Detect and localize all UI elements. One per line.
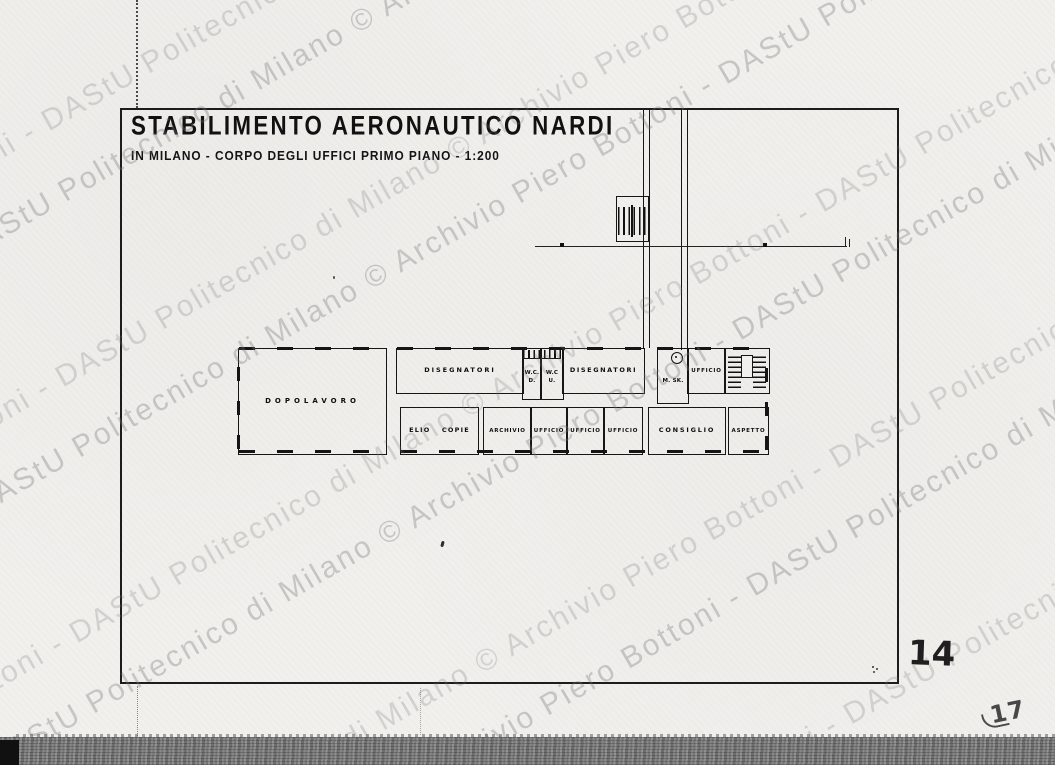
watermark-text: © Archivio Piero Bottoni - DAStU Politec… [0, 0, 1055, 87]
room-disegnatori-right: DISEGNATORI [562, 348, 645, 394]
stair-flight [728, 355, 741, 388]
room-label: DOPOLAVORO [265, 396, 360, 407]
ink-speck [333, 276, 335, 279]
canopy-column-mark [763, 243, 767, 247]
exterior-wall-hatch [239, 347, 384, 351]
pencil-curve [981, 709, 1010, 730]
stair-divider [631, 205, 633, 237]
wing-staircase [616, 196, 649, 242]
drawing-subtitle: IN MILANO - CORPO DEGLI UFFICI PRIMO PIA… [131, 149, 500, 163]
room-label: DISEGNATORI [424, 366, 496, 376]
canopy-column-mark [560, 243, 564, 247]
room-label: W.C U. [546, 369, 558, 386]
room-label: UFFICIO [608, 427, 638, 435]
room-ufficio-2: UFFICIO [566, 407, 605, 455]
drawing-title: STABILIMENTO AERONAUTICO NARDI [131, 111, 614, 142]
scanned-drawing-page: © Archivio Piero Bottoni - DAStU Politec… [0, 0, 1055, 765]
room-disegnatori-left: DISEGNATORI [396, 348, 524, 394]
wc-skylight-hatch [523, 350, 561, 359]
room-ufficio-3: UFFICIO [603, 407, 643, 455]
room-consiglio: CONSIGLIO [648, 407, 726, 455]
dotted-line-bottom-left [137, 686, 138, 736]
exterior-wall-hatch [239, 450, 384, 454]
room-aspetto: ASPETTO [728, 407, 769, 455]
canopy-end-tick [849, 239, 850, 247]
room-label: UFFICIO [570, 427, 600, 435]
room-label: DISEGNATORI [570, 366, 637, 376]
exterior-wall-hatch [401, 450, 767, 454]
main-staircase [724, 348, 770, 394]
room-label: CONSIGLIO [659, 426, 715, 436]
room-label: UFFICIO [534, 427, 564, 435]
room-archivio: ARCHIVIO [483, 407, 532, 455]
exterior-wall-hatch [397, 347, 643, 351]
dotted-line-top [136, 0, 138, 108]
room-label: ELIO COPIE [409, 426, 470, 436]
room-ufficio-top: UFFICIO [687, 348, 726, 394]
page-number: 14 [907, 633, 956, 675]
room-label: W.C. D. [525, 369, 540, 386]
room-elio-copie: ELIO COPIE [400, 407, 479, 455]
wing-wall-right [681, 110, 688, 350]
exterior-wall-hatch [765, 351, 769, 450]
room-label: M. SK. [663, 377, 684, 385]
room-label: ASPETTO [732, 427, 766, 435]
room-label: UFFICIO [691, 367, 721, 375]
column-symbol [671, 352, 683, 364]
room-label: ARCHIVIO [489, 427, 526, 435]
ink-speck [872, 666, 874, 668]
canopy-line [535, 246, 847, 247]
film-strip-black-edge [0, 740, 19, 765]
film-strip-band [0, 737, 1055, 765]
exterior-wall-hatch [237, 352, 241, 449]
exterior-wall-hatch [657, 347, 767, 351]
dotted-line-bottom-center [420, 688, 421, 735]
room-ufficio-1: UFFICIO [530, 407, 568, 455]
stair-landing [741, 355, 753, 378]
canopy-end-tick [845, 237, 846, 247]
room-dopolavoro: DOPOLAVORO [238, 348, 387, 455]
pencil-note: 17 [987, 695, 1027, 730]
